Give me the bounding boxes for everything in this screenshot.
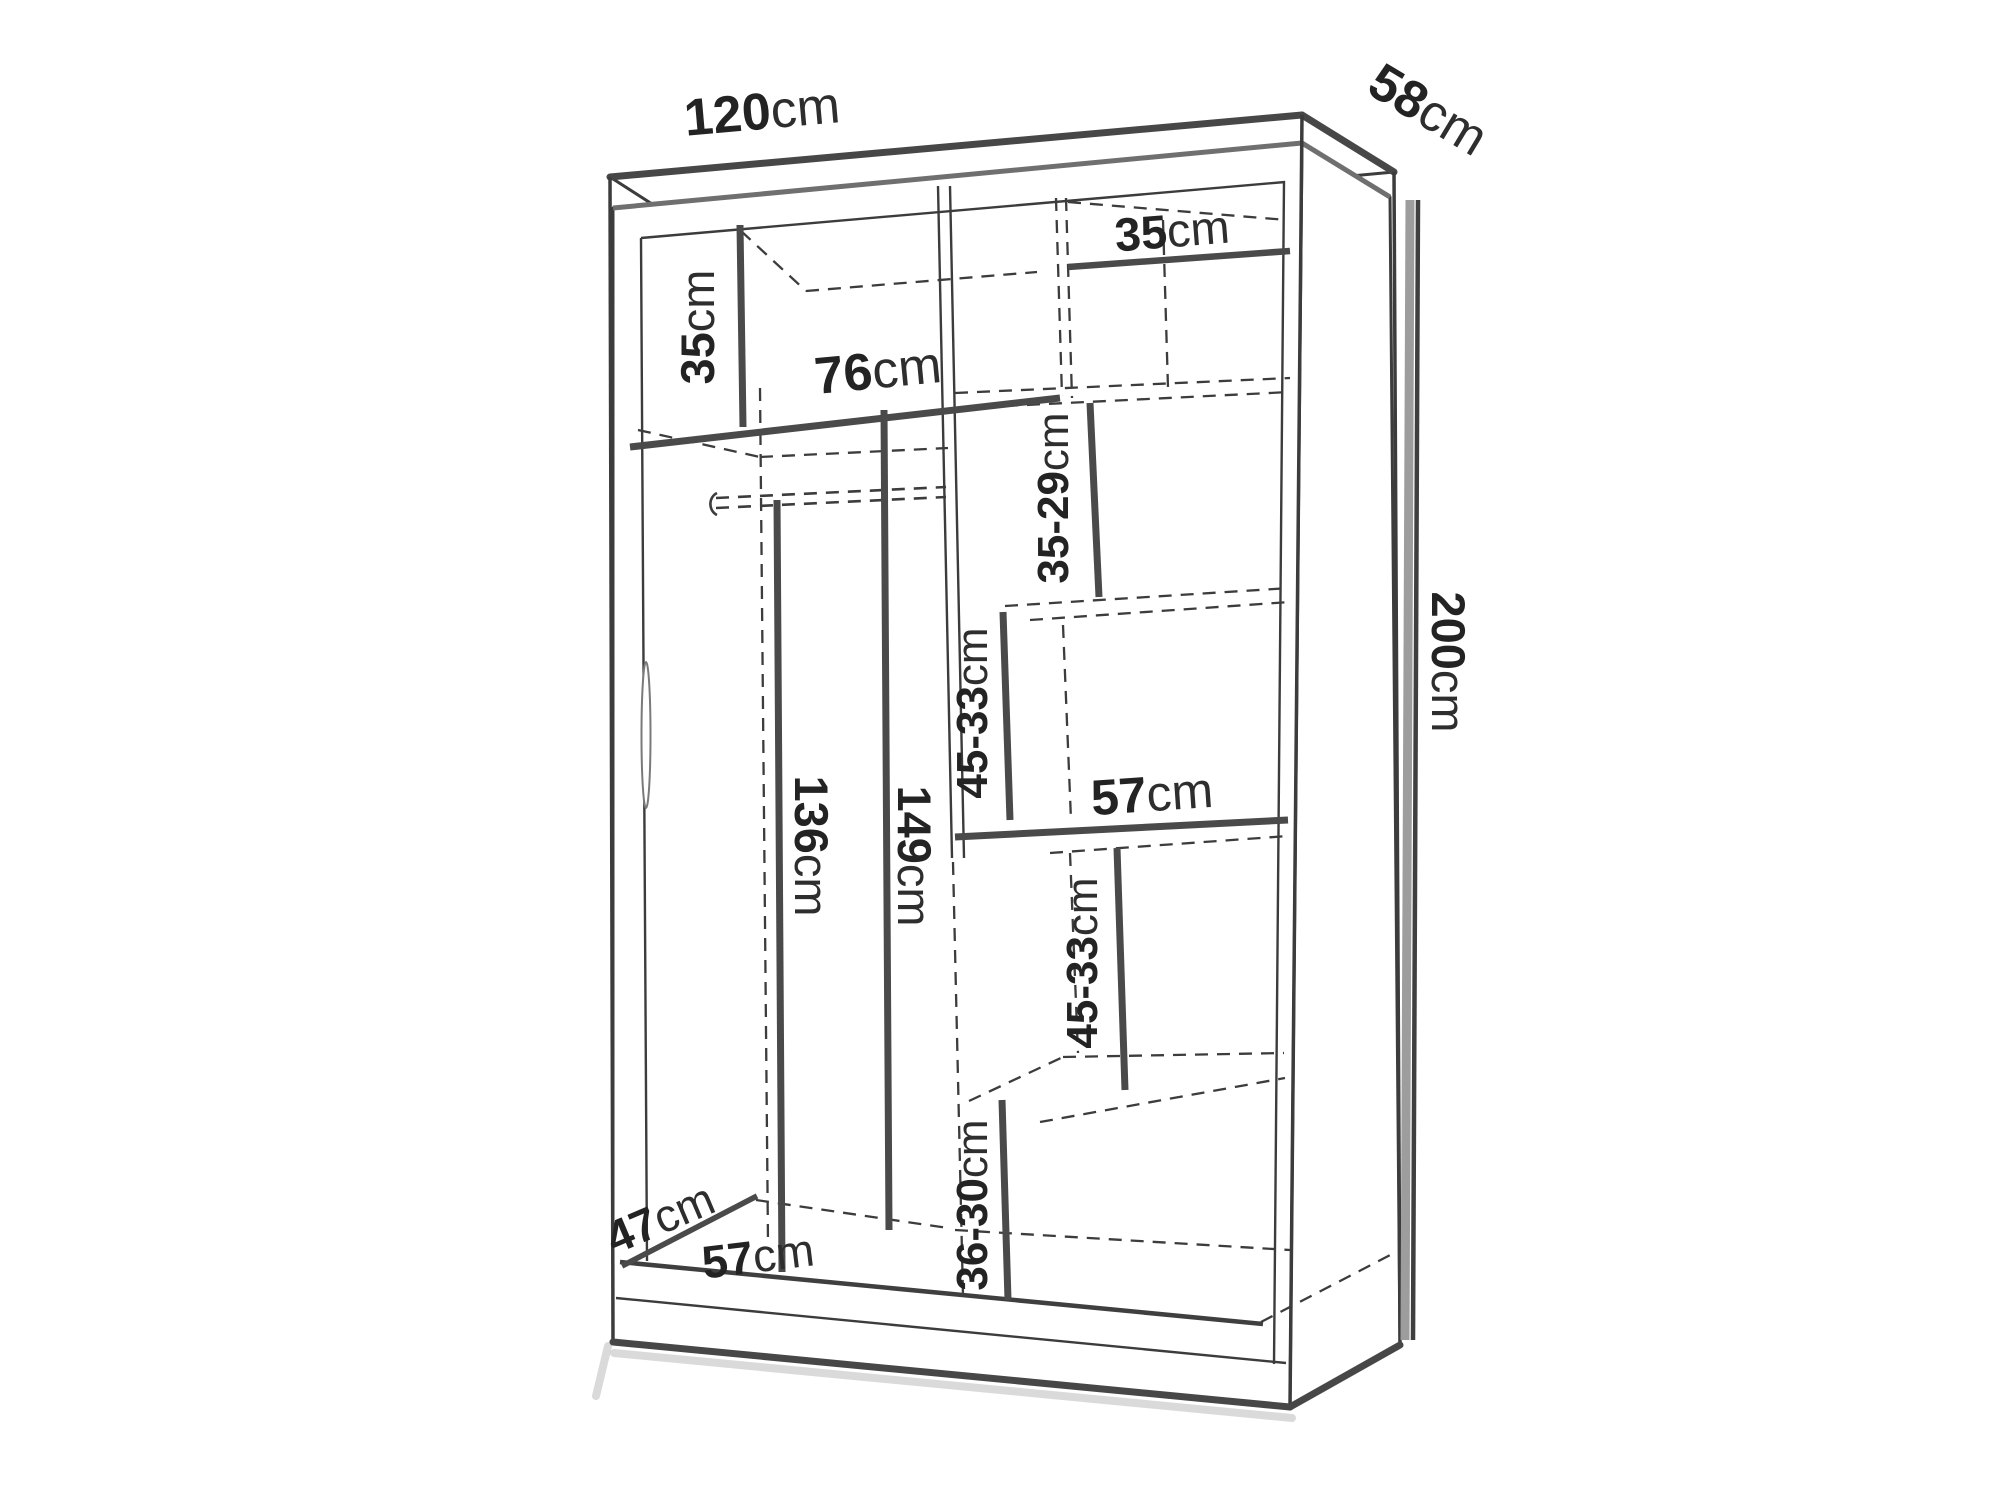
- dim-top-center-width: 76cm: [812, 336, 944, 406]
- dim-overall-width: 120cm: [682, 76, 843, 147]
- dim-top-left-shelf-height: 35cm: [671, 270, 724, 385]
- dim-hanging-front-height: 136cm: [786, 775, 839, 916]
- dim-right-middle-shelf-width: 57cm: [1089, 762, 1215, 826]
- measure-136: [777, 500, 782, 1272]
- dim-right-zone3-height: 45-33cm: [1058, 877, 1107, 1048]
- diagram-canvas: 120cm 58cm 200cm 35cm 76cm 35cm 35-29cm …: [0, 0, 2000, 1500]
- dim-right-zone4-height: 36-30cm: [948, 1119, 997, 1290]
- dim-overall-depth: 58cm: [1359, 52, 1498, 167]
- measure-35-top-left: [740, 225, 743, 427]
- wardrobe-dimension-diagram: 120cm 58cm 200cm 35cm 76cm 35cm 35-29cm …: [0, 0, 2000, 1500]
- dim-right-zone2-height: 45-33cm: [948, 627, 997, 798]
- side-face: [1290, 143, 1400, 1407]
- measure-149: [884, 410, 889, 1230]
- dim-top-right-shelf: 35cm: [1113, 199, 1232, 261]
- door-reflection: [642, 662, 651, 808]
- corner-shadow: [596, 1346, 608, 1396]
- dim-hanging-back-height: 149cm: [889, 785, 942, 926]
- dim-right-zone1-height: 35-29cm: [1029, 412, 1078, 583]
- measure-200-band: [1405, 200, 1410, 1340]
- dim-overall-height: 200cm: [1423, 591, 1476, 732]
